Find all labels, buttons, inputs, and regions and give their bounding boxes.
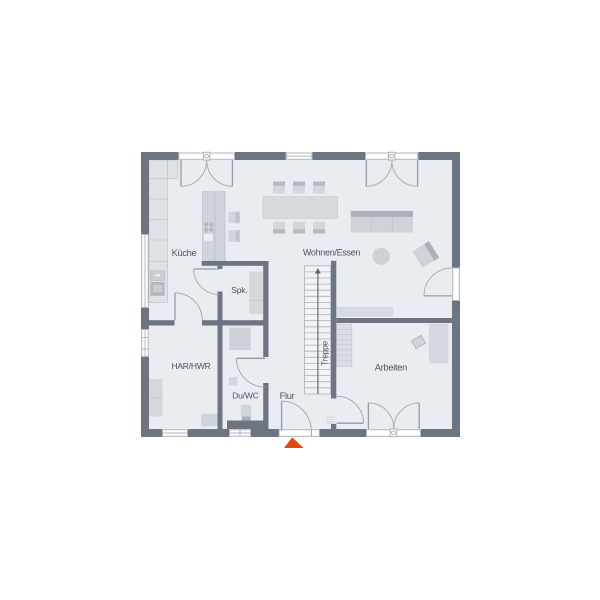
svg-text:Spk.: Spk. [231, 285, 247, 295]
svg-text:Arbeiten: Arbeiten [375, 363, 407, 373]
svg-text:Flur: Flur [280, 391, 295, 401]
svg-text:HAR/HWR: HAR/HWR [171, 361, 210, 371]
svg-text:Wohnen/Essen: Wohnen/Essen [303, 248, 361, 258]
svg-text:Treppe: Treppe [320, 340, 330, 365]
svg-text:Du/WC: Du/WC [232, 391, 258, 401]
svg-text:Küche: Küche [172, 248, 197, 258]
